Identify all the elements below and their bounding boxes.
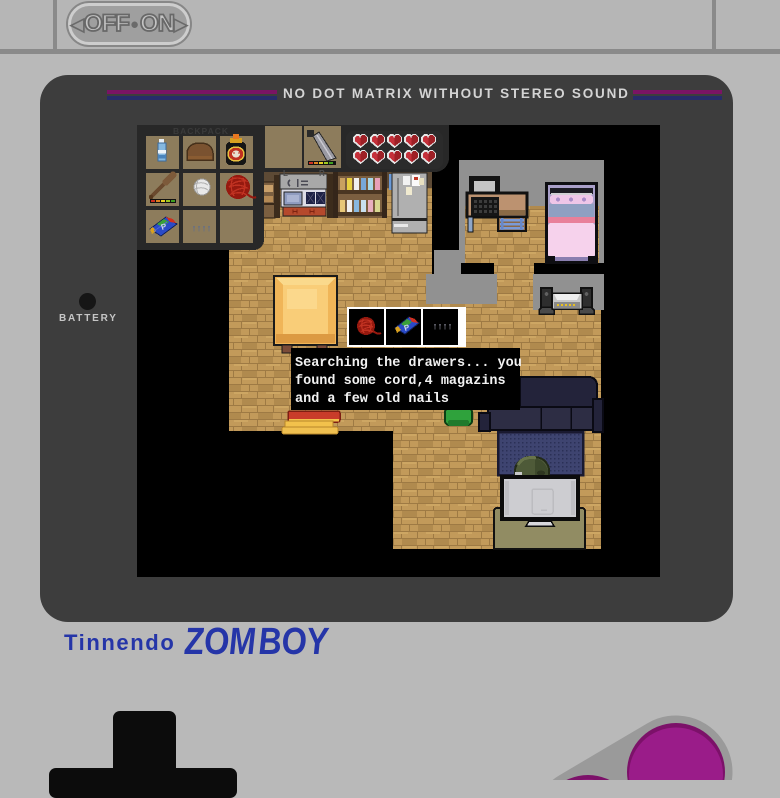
svg-text:R: R: [319, 169, 325, 178]
svg-text:and a few old nails: and a few old nails: [295, 392, 449, 407]
svg-text:L: L: [283, 169, 288, 178]
svg-text:found some cord,4 magazins: found some cord,4 magazins: [295, 374, 506, 389]
svg-text:BACKPACK: BACKPACK: [173, 126, 229, 136]
svg-text:Searching the drawers... you: Searching the drawers... you: [295, 356, 522, 371]
